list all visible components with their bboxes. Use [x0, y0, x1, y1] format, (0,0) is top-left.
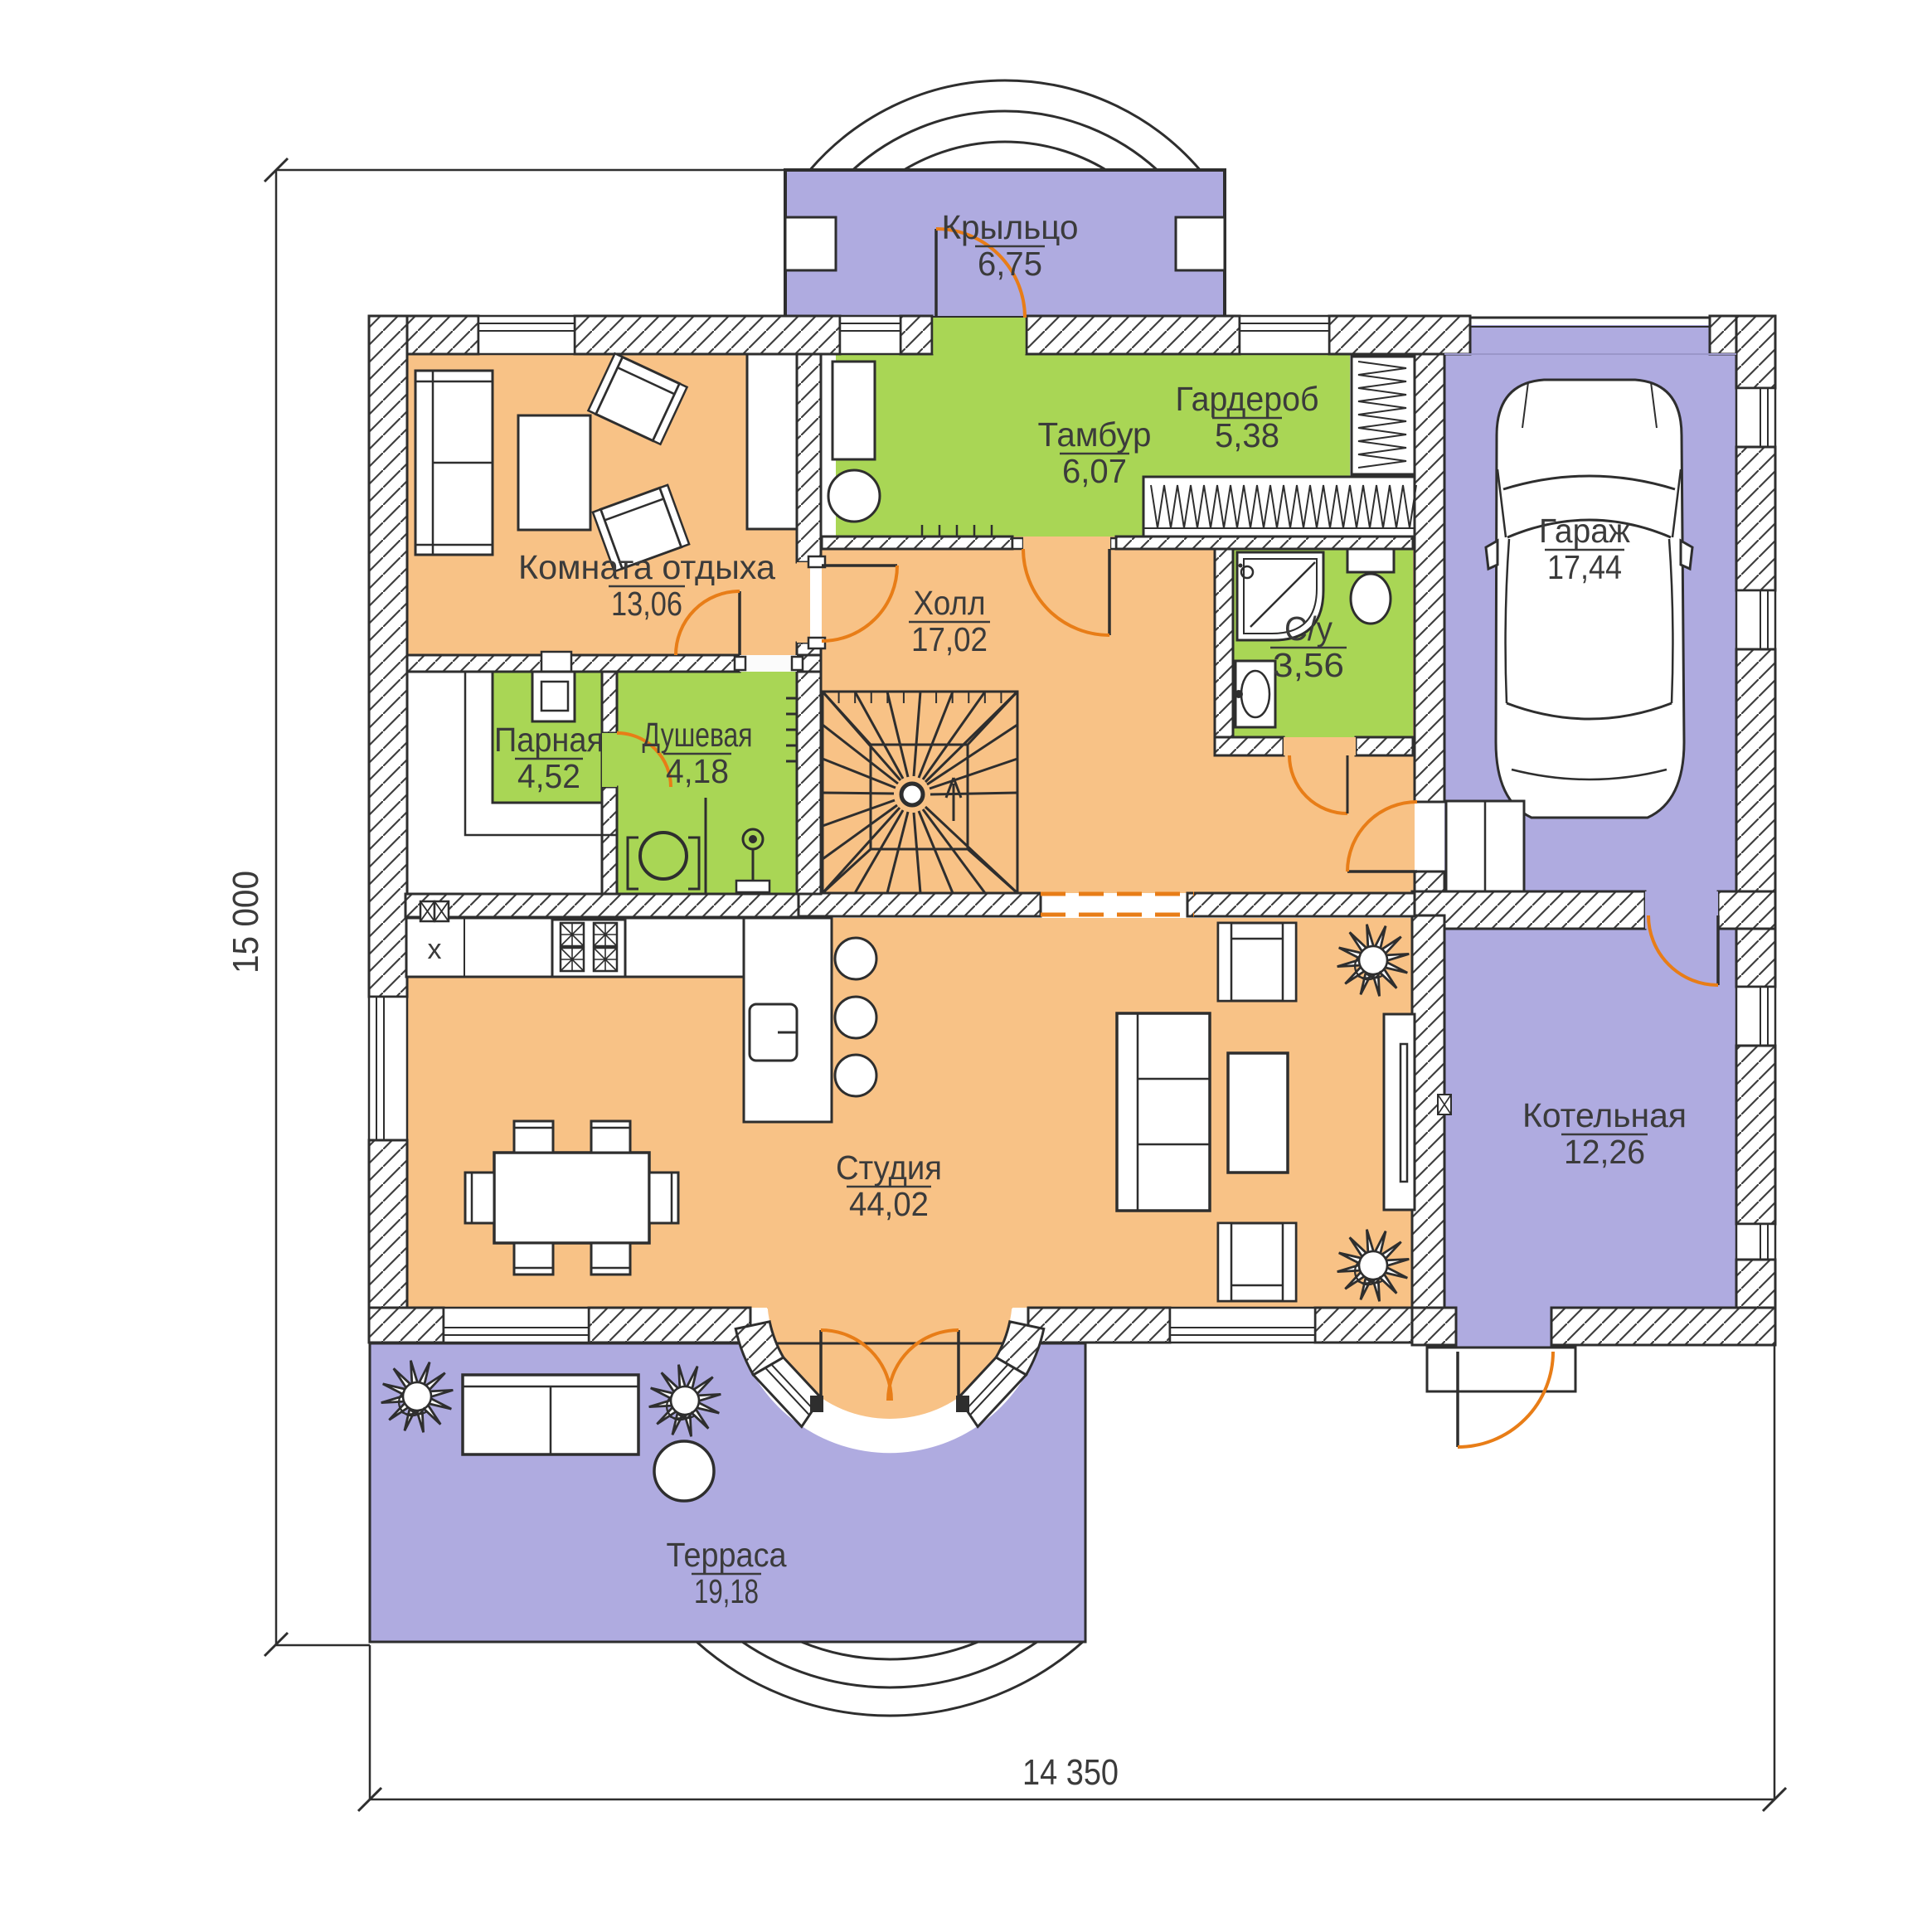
- svg-text:19,18: 19,18: [694, 1572, 759, 1610]
- svg-text:Котельная: Котельная: [1522, 1096, 1687, 1134]
- svg-text:13,06: 13,06: [611, 585, 682, 623]
- svg-text:44,02: 44,02: [849, 1185, 929, 1223]
- svg-text:12,26: 12,26: [1564, 1133, 1645, 1171]
- svg-text:Студия: Студия: [836, 1148, 942, 1187]
- svg-text:6,75: 6,75: [978, 245, 1042, 283]
- svg-text:Тамбур: Тамбур: [1038, 415, 1152, 454]
- svg-text:Гараж: Гараж: [1539, 512, 1631, 550]
- svg-text:14 350: 14 350: [1022, 1752, 1119, 1793]
- svg-text:17,02: 17,02: [911, 620, 988, 658]
- svg-text:15 000: 15 000: [226, 871, 266, 974]
- svg-text:Парная: Парная: [494, 721, 604, 759]
- svg-text:Душевая: Душевая: [643, 716, 753, 754]
- svg-text:С/у: С/у: [1284, 609, 1332, 648]
- svg-text:Комната отдыха: Комната отдыха: [518, 548, 775, 586]
- svg-text:3,56: 3,56: [1273, 646, 1344, 684]
- svg-text:Крыльцо: Крыльцо: [942, 208, 1079, 246]
- svg-text:Гардероб: Гардероб: [1176, 380, 1319, 418]
- svg-text:5,38: 5,38: [1215, 416, 1279, 454]
- svg-text:6,07: 6,07: [1062, 452, 1127, 490]
- svg-text:4,18: 4,18: [666, 752, 729, 790]
- svg-text:Терраса: Терраса: [667, 1536, 787, 1574]
- svg-text:4,52: 4,52: [517, 757, 580, 795]
- svg-text:x: x: [428, 934, 442, 965]
- svg-text:17,44: 17,44: [1547, 548, 1622, 586]
- svg-text:Холл: Холл: [914, 584, 986, 622]
